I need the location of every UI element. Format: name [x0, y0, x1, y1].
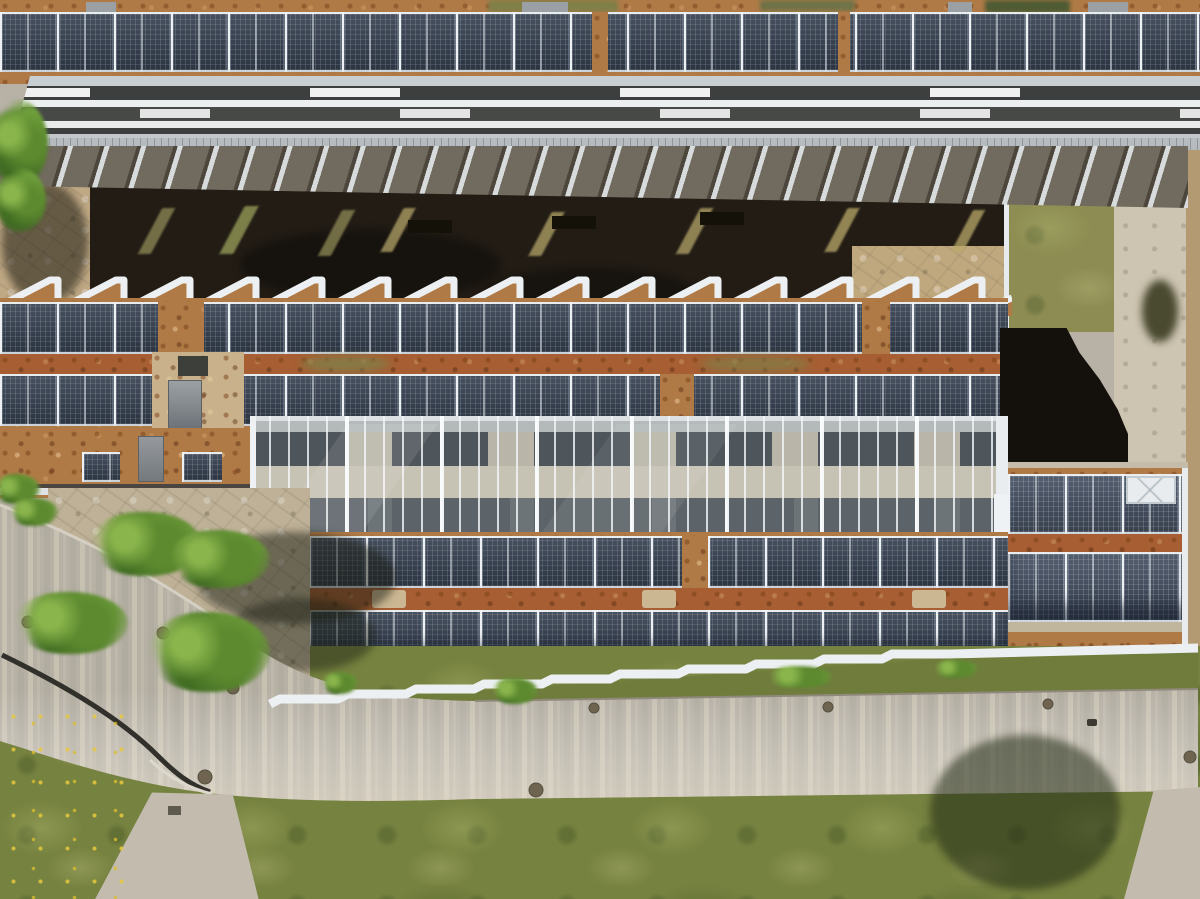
panel-gap: [592, 12, 608, 72]
tree-shadow: [930, 735, 1120, 890]
panel-gap: [862, 302, 890, 354]
shrub: [1142, 280, 1178, 342]
panel-gap: [838, 12, 850, 72]
footpath-mark: [168, 806, 181, 815]
hvac-cabinet: [168, 380, 202, 432]
green-roof-patch: [1008, 186, 1114, 332]
shrub: [492, 678, 538, 704]
main-roof: [0, 298, 1008, 432]
shrub: [934, 660, 978, 678]
solar-row-1: [0, 302, 1008, 354]
sawtooth-roof-edge-bottom: [248, 640, 1200, 712]
manhole: [529, 783, 543, 797]
building-shadow: [1000, 328, 1128, 464]
roof-hatch: [178, 356, 208, 376]
tree-canopy: [16, 592, 128, 654]
aerial-photo-scene: [0, 0, 1200, 899]
tree-canopy: [170, 530, 270, 588]
sun-streak: [138, 208, 175, 254]
facade-stripe-band: [0, 76, 1200, 150]
manhole: [1184, 751, 1196, 763]
courtyard-bench: [408, 220, 452, 233]
drain-grate: [1087, 719, 1097, 726]
bush-cluster: [0, 168, 46, 232]
shrub: [768, 666, 832, 688]
shrub: [322, 672, 358, 694]
sedum-patch: [760, 0, 855, 11]
bush-cluster: [10, 498, 58, 526]
sun-streak: [219, 206, 259, 254]
courtyard-bench: [700, 212, 744, 225]
sedum-patch: [700, 356, 810, 372]
courtyard-bench: [552, 216, 596, 229]
dandelion-field: [0, 700, 135, 899]
panel-gap: [158, 302, 204, 354]
manhole: [198, 770, 212, 784]
sedum-patch: [300, 356, 390, 372]
tree-canopy: [150, 612, 270, 692]
sawtooth-white-edge: [270, 648, 1198, 704]
